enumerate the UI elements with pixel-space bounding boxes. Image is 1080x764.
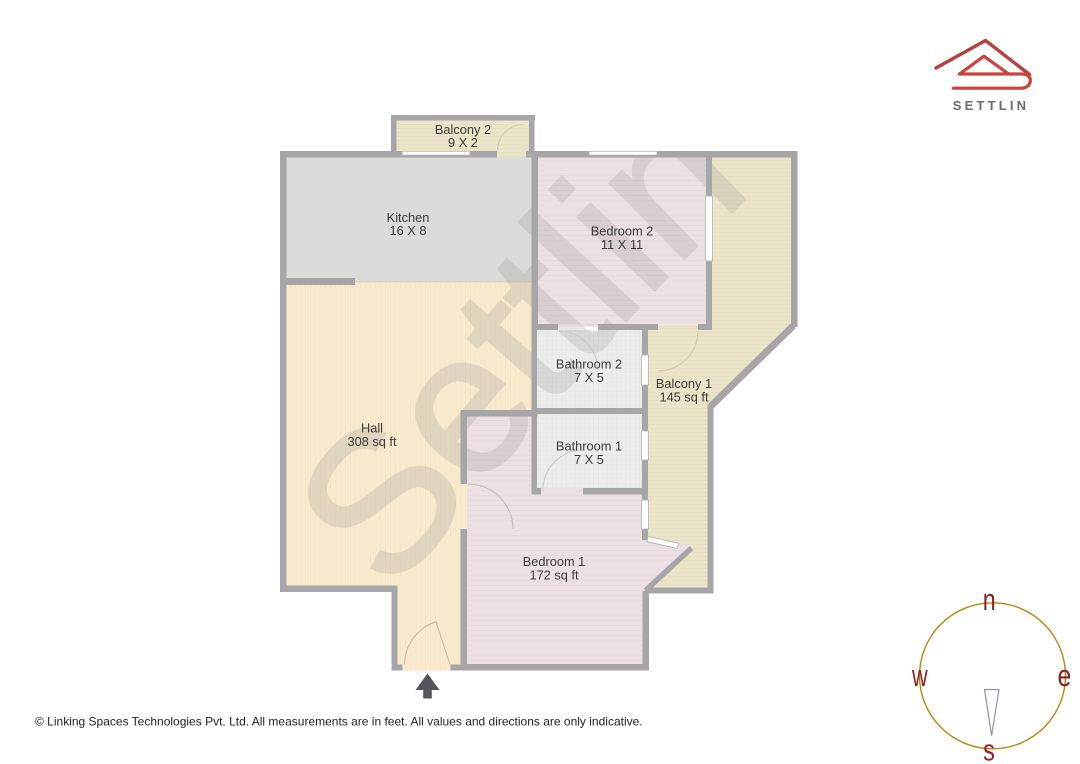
svg-text:SETTLIN: SETTLIN bbox=[953, 98, 1030, 113]
svg-text:7 X 5: 7 X 5 bbox=[574, 452, 604, 467]
svg-text:7 X 5: 7 X 5 bbox=[574, 370, 604, 385]
svg-text:e: e bbox=[1058, 658, 1072, 692]
svg-text:308 sq ft: 308 sq ft bbox=[347, 434, 397, 449]
svg-text:s: s bbox=[983, 732, 995, 764]
svg-text:n: n bbox=[983, 582, 996, 617]
svg-text:9 X 2: 9 X 2 bbox=[448, 135, 478, 150]
svg-text:w: w bbox=[911, 658, 928, 693]
svg-text:11 X 11: 11 X 11 bbox=[601, 237, 643, 252]
svg-text:145 sq ft: 145 sq ft bbox=[659, 390, 709, 405]
svg-text:16 X 8: 16 X 8 bbox=[390, 223, 427, 238]
svg-text:© Linking Spaces Technologies: © Linking Spaces Technologies Pvt. Ltd. … bbox=[35, 715, 643, 729]
svg-text:172 sq ft: 172 sq ft bbox=[529, 568, 579, 583]
